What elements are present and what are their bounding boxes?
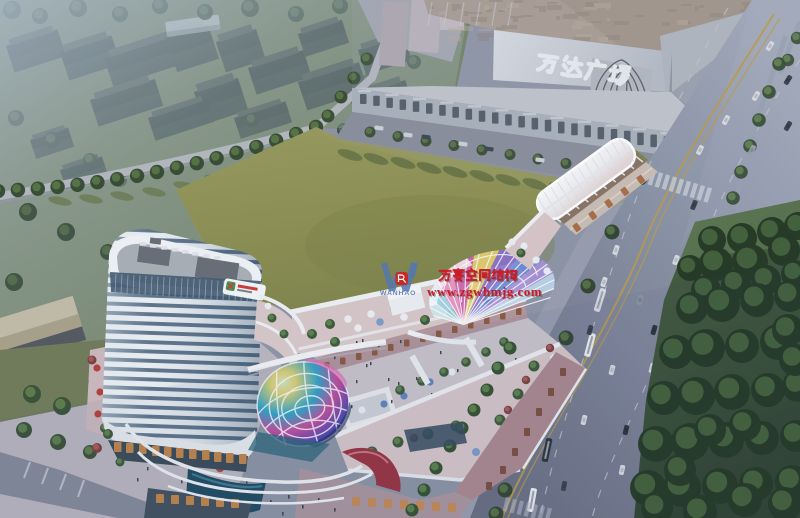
svg-text:www.zgwhmjg.com: www.zgwhmjg.com (427, 284, 542, 299)
svg-text:WANHAO: WANHAO (380, 290, 416, 297)
